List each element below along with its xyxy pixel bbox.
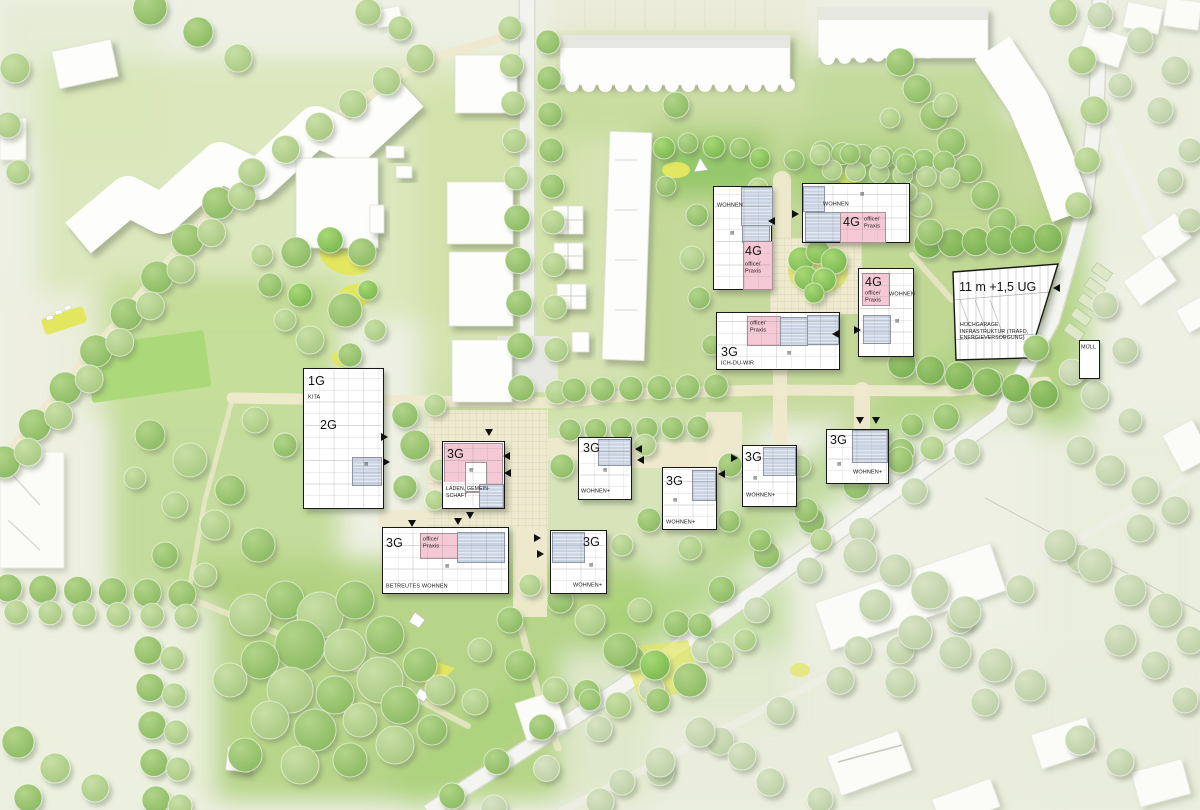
tree [355, 0, 381, 25]
parking-garage-labels: 11 m +1,5 UG HOCHGARAGE INFRASTRUKTUR (T… [953, 264, 1065, 364]
tree [75, 365, 103, 393]
skylight-icon: ⊠ [603, 468, 607, 473]
tree [38, 601, 62, 625]
tree [810, 145, 830, 165]
tree [124, 467, 146, 489]
tree [896, 154, 916, 174]
tree [174, 604, 198, 628]
roof-unit-blue [598, 439, 631, 466]
tree [640, 650, 670, 680]
tree [142, 786, 170, 810]
tree [1114, 574, 1146, 606]
tree [870, 148, 890, 168]
office-label: Praxis [423, 543, 439, 549]
tree [519, 574, 541, 596]
floors-label: 1G [308, 375, 325, 388]
tree [685, 717, 715, 747]
tree [603, 633, 637, 667]
garage-height-label: 11 m +1,5 UG [959, 280, 1036, 294]
wohnen-label: WOHNEN [823, 201, 849, 207]
building-wohnen-plus-5: 3G WOHNEN+ ⊠ [550, 530, 607, 594]
laeden-label: LÄDEN, GEMEIN- SCHAFT [446, 486, 490, 499]
tree [135, 420, 165, 450]
entrance-arrow-icon [466, 512, 474, 519]
tree [343, 703, 377, 737]
tree [0, 112, 21, 138]
building-betreutes-wohnen: 3G office/ Praxis BETREUTES WOHNEN ⊠ [382, 527, 509, 594]
tree [215, 475, 245, 505]
floors-label: 3G [386, 537, 403, 550]
tree [1002, 374, 1030, 402]
tree [140, 749, 168, 777]
floors-label: 3G [583, 536, 600, 549]
tree [534, 755, 560, 781]
tree [718, 510, 740, 532]
tree [366, 616, 404, 654]
tree [1178, 208, 1200, 232]
muell-label: MÜLL [1081, 344, 1096, 350]
tree [646, 688, 670, 712]
tree [678, 133, 698, 153]
tree [481, 795, 507, 810]
tree [1034, 224, 1062, 252]
office-label: office/ [745, 261, 761, 267]
garage-label: HOCHGARAGE INFRASTRUKTUR (TRAFO, ENERGIE… [960, 322, 1028, 342]
tree [393, 475, 417, 499]
tree [709, 576, 735, 602]
skylight-icon: ⊠ [673, 498, 677, 503]
floors-label: 3G [583, 442, 600, 455]
tree [575, 605, 605, 635]
tree [14, 438, 42, 466]
floors-label: 3G [830, 434, 847, 447]
tree [1066, 436, 1094, 464]
tree [417, 715, 447, 745]
tree [1172, 687, 1198, 713]
tree [1178, 138, 1200, 162]
tree [1161, 496, 1189, 524]
tree [381, 686, 419, 724]
tree [920, 436, 944, 460]
tree [1126, 514, 1154, 542]
tree [317, 227, 343, 253]
tree [898, 615, 932, 649]
tree [794, 498, 818, 522]
tree [1006, 399, 1032, 425]
tree [333, 743, 367, 777]
entrance-arrow-icon [1053, 284, 1060, 292]
tree [1131, 476, 1159, 504]
tree [1106, 748, 1134, 776]
tree [840, 144, 860, 164]
tree [901, 414, 923, 436]
tree [388, 16, 412, 40]
tree [64, 576, 92, 604]
tree [294, 709, 336, 751]
tree [138, 711, 166, 739]
tree [917, 219, 943, 245]
tree [106, 328, 134, 356]
tree [687, 416, 709, 438]
tree [167, 255, 195, 283]
tree [242, 407, 268, 433]
entrance-arrow-icon [718, 470, 725, 478]
tree [338, 343, 362, 367]
tree [1148, 593, 1182, 627]
tree [358, 280, 378, 300]
office-label: office/ [864, 216, 880, 222]
tree [1068, 46, 1096, 74]
tree [505, 248, 531, 274]
tree [605, 692, 631, 718]
tree [2, 726, 34, 758]
roof-unit-blue [763, 447, 796, 476]
tree [40, 753, 70, 783]
tree [1014, 669, 1046, 701]
garage-label-line: ENERGIEVERSORGUNG) [960, 335, 1028, 342]
skylight-icon: ⊠ [364, 462, 368, 467]
office-label: office/ [423, 536, 439, 542]
tree [45, 401, 73, 429]
tree [272, 135, 300, 163]
office-label: office/ [865, 290, 881, 296]
tree [173, 443, 207, 477]
tree [940, 168, 960, 188]
floors-label: 3G [666, 475, 683, 488]
entrance-arrow-icon [856, 417, 864, 424]
skylight-icon: ⊠ [895, 319, 899, 324]
tree [734, 629, 756, 651]
tree [537, 66, 561, 90]
tree [707, 642, 733, 668]
tree [281, 746, 319, 784]
tree [973, 368, 1001, 396]
tree [661, 417, 683, 439]
tree [586, 716, 612, 742]
tree [676, 375, 700, 399]
tree [562, 378, 586, 402]
tree [784, 150, 804, 170]
building-wohnen-plus-4: 3G WOHNEN+ ⊠ [826, 429, 889, 484]
floors-label: 4G [745, 245, 762, 258]
office-label: Praxis [750, 327, 766, 333]
tree [98, 578, 126, 606]
tree [273, 433, 297, 457]
tree [796, 557, 822, 583]
skylight-icon: ⊠ [469, 468, 473, 473]
tree [885, 667, 915, 697]
tree [1108, 73, 1132, 97]
tree [1092, 292, 1118, 318]
tree [506, 290, 532, 316]
tree [462, 689, 488, 715]
office-label: Praxis [864, 223, 880, 229]
tree [81, 774, 109, 802]
tree [339, 90, 367, 118]
tree [507, 333, 533, 359]
tree [750, 148, 770, 168]
building-name-label: BETREUTES WOHNEN [386, 583, 448, 589]
wohnen-label: WOHNEN [889, 291, 915, 297]
tree [134, 636, 162, 664]
tree [288, 283, 312, 307]
wohnen-plus-label: WOHNEN+ [573, 582, 602, 588]
tree [645, 747, 675, 777]
tree [136, 674, 164, 702]
roof-unit-blue [552, 532, 585, 563]
tree [336, 581, 374, 619]
tree [229, 594, 271, 636]
tree [505, 650, 535, 680]
entrance-arrow-icon [792, 210, 799, 218]
tree [324, 629, 366, 671]
entrance-arrow-icon [504, 469, 511, 477]
tree [1065, 725, 1095, 755]
tree [72, 602, 96, 626]
tree [538, 102, 562, 126]
tree [673, 663, 707, 697]
floors-label: 3G [447, 448, 464, 461]
skylight-icon: ⊠ [589, 563, 593, 568]
tree [933, 93, 957, 117]
tree [730, 138, 750, 158]
tree [678, 536, 702, 560]
tree [1074, 147, 1100, 173]
roof-unit-blue [852, 430, 888, 463]
tree [193, 563, 217, 587]
tree [916, 356, 944, 384]
tree [1104, 624, 1136, 656]
tree [1157, 167, 1183, 193]
tree [880, 108, 900, 128]
tree [166, 757, 190, 781]
tree [703, 136, 725, 158]
tree [529, 714, 555, 740]
tree [348, 238, 376, 266]
tree [541, 210, 565, 234]
tree [933, 404, 959, 430]
tree [4, 600, 28, 624]
roof-unit-blue [805, 212, 841, 242]
entrance-arrow-icon [637, 456, 644, 464]
tree [903, 75, 931, 103]
tree [1030, 380, 1058, 408]
entrance-arrow-icon [832, 330, 839, 338]
entrance-arrow-icon [731, 454, 738, 462]
tree [152, 542, 178, 568]
tree [536, 30, 560, 54]
tree [978, 648, 1012, 682]
tree [504, 166, 528, 190]
tree [939, 636, 971, 668]
entrance-arrow-icon [872, 417, 880, 424]
tree [14, 784, 42, 810]
skylight-icon: ⊠ [787, 351, 791, 356]
tree [1176, 626, 1200, 654]
skylight-icon: ⊠ [753, 476, 757, 481]
tree [275, 620, 325, 670]
tree [590, 377, 614, 401]
skylight-icon: ⊠ [860, 192, 864, 197]
tree [611, 534, 633, 556]
tree [136, 292, 164, 320]
vegetation-layer [0, 0, 1200, 810]
tree [183, 17, 213, 47]
tree [609, 769, 635, 795]
tree [1065, 192, 1091, 218]
tree [213, 663, 247, 697]
tree [200, 510, 230, 540]
tree [586, 788, 614, 810]
tree [954, 438, 980, 464]
floors-label: 3G [721, 346, 738, 359]
tree [241, 641, 279, 679]
tree [680, 246, 704, 270]
tree [251, 244, 273, 266]
tree [106, 602, 130, 626]
tree [468, 638, 492, 662]
tree [1118, 408, 1142, 432]
building-name-label: ICH-DU-WIR [721, 360, 754, 366]
tree [656, 176, 676, 196]
tree [484, 749, 510, 775]
tree [400, 430, 430, 460]
tree [29, 575, 57, 603]
entrance-arrow-icon [503, 452, 510, 460]
entrance-arrow-icon [454, 518, 462, 525]
tree [949, 596, 981, 628]
tree [1112, 337, 1138, 363]
tree [392, 402, 418, 428]
tree [542, 677, 568, 703]
site-plan-canvas: WOHNEN 4G office/ Praxis ⊠ WOHNEN 4G off… [0, 0, 1200, 810]
tree [497, 607, 523, 633]
tree [501, 91, 525, 115]
tree [241, 528, 275, 562]
tree [1147, 97, 1173, 123]
laeden-label-line: LÄDEN, GEMEIN- [446, 486, 490, 493]
kita-label: KITA [308, 394, 320, 400]
tree [916, 166, 936, 186]
tree [372, 67, 400, 95]
tree [238, 158, 266, 186]
building-wohnen-plus-1: 3G WOHNEN+ ⊠ [578, 437, 632, 500]
tree [945, 362, 973, 390]
tree [281, 237, 311, 267]
tree [579, 689, 601, 711]
tree [542, 253, 566, 277]
building-wohnen-plus-2: 3G WOHNEN+ ⊠ [662, 467, 717, 530]
tree [224, 44, 252, 72]
tree [686, 204, 708, 226]
tree [1049, 0, 1077, 26]
tree [424, 394, 446, 416]
tree [164, 720, 188, 744]
tree [728, 742, 756, 770]
tree [1081, 381, 1109, 409]
tree [364, 319, 386, 341]
tree [901, 478, 927, 504]
tree [879, 554, 911, 586]
tree [251, 701, 289, 739]
entrance-arrow-icon [537, 550, 544, 558]
tree [886, 48, 914, 76]
roof-unit-blue [863, 315, 891, 344]
tree [688, 613, 712, 637]
entrance-arrow-icon [768, 217, 775, 225]
entrance-arrow-icon [635, 445, 642, 453]
tree [846, 162, 866, 182]
tree [653, 137, 675, 159]
tree [0, 53, 30, 83]
skylight-icon: ⊠ [730, 231, 734, 236]
tree [664, 611, 690, 637]
tree [1127, 27, 1153, 53]
building-laeden-gemeinschaft: 3G LÄDEN, GEMEIN- SCHAFT ⊠ [442, 441, 505, 509]
tree [971, 688, 999, 716]
tree [439, 783, 465, 809]
tree [637, 508, 661, 532]
tree [550, 454, 574, 478]
tree [6, 160, 30, 184]
floors-label: 3G [745, 451, 762, 464]
tree [197, 219, 225, 247]
tree [168, 794, 192, 810]
tree [406, 44, 434, 72]
tree [1080, 96, 1108, 124]
tree [296, 326, 324, 354]
tree [544, 338, 568, 362]
tree [843, 538, 877, 572]
building-ich-du-wir: office/ Praxis 3G ICH-DU-WIR ⊠ [716, 312, 840, 370]
roof-unit-blue [692, 470, 716, 501]
tree [160, 646, 184, 670]
floors-label: 4G [843, 216, 860, 229]
tree [1087, 2, 1113, 28]
tree [766, 697, 794, 725]
tree [756, 768, 784, 796]
tree [971, 181, 999, 209]
floors-label: 4G [865, 276, 882, 289]
tree [328, 293, 362, 327]
floors-label: 2G [320, 419, 337, 432]
tree [162, 683, 186, 707]
tree [258, 273, 282, 297]
wohnen-label: WOHNEN [717, 202, 743, 208]
tree [0, 574, 22, 602]
tree [859, 589, 891, 621]
roof-unit-blue [457, 532, 505, 563]
tree [1006, 575, 1034, 603]
building-kita: 1G KITA 2G ⊠ [303, 368, 384, 509]
tree [540, 174, 564, 198]
skylight-icon: ⊠ [837, 462, 841, 467]
entrance-arrow-icon [381, 433, 388, 441]
tree [503, 129, 527, 153]
tree [810, 529, 832, 551]
tree [539, 138, 563, 162]
tree [305, 112, 333, 140]
tree [628, 598, 652, 622]
tree [140, 603, 164, 627]
skylight-icon: ⊠ [445, 564, 449, 569]
tree [500, 54, 524, 78]
tree [376, 726, 414, 764]
tree [807, 787, 833, 810]
tree [749, 529, 771, 551]
laeden-label-line: SCHAFT [446, 493, 490, 500]
tree [887, 447, 913, 473]
